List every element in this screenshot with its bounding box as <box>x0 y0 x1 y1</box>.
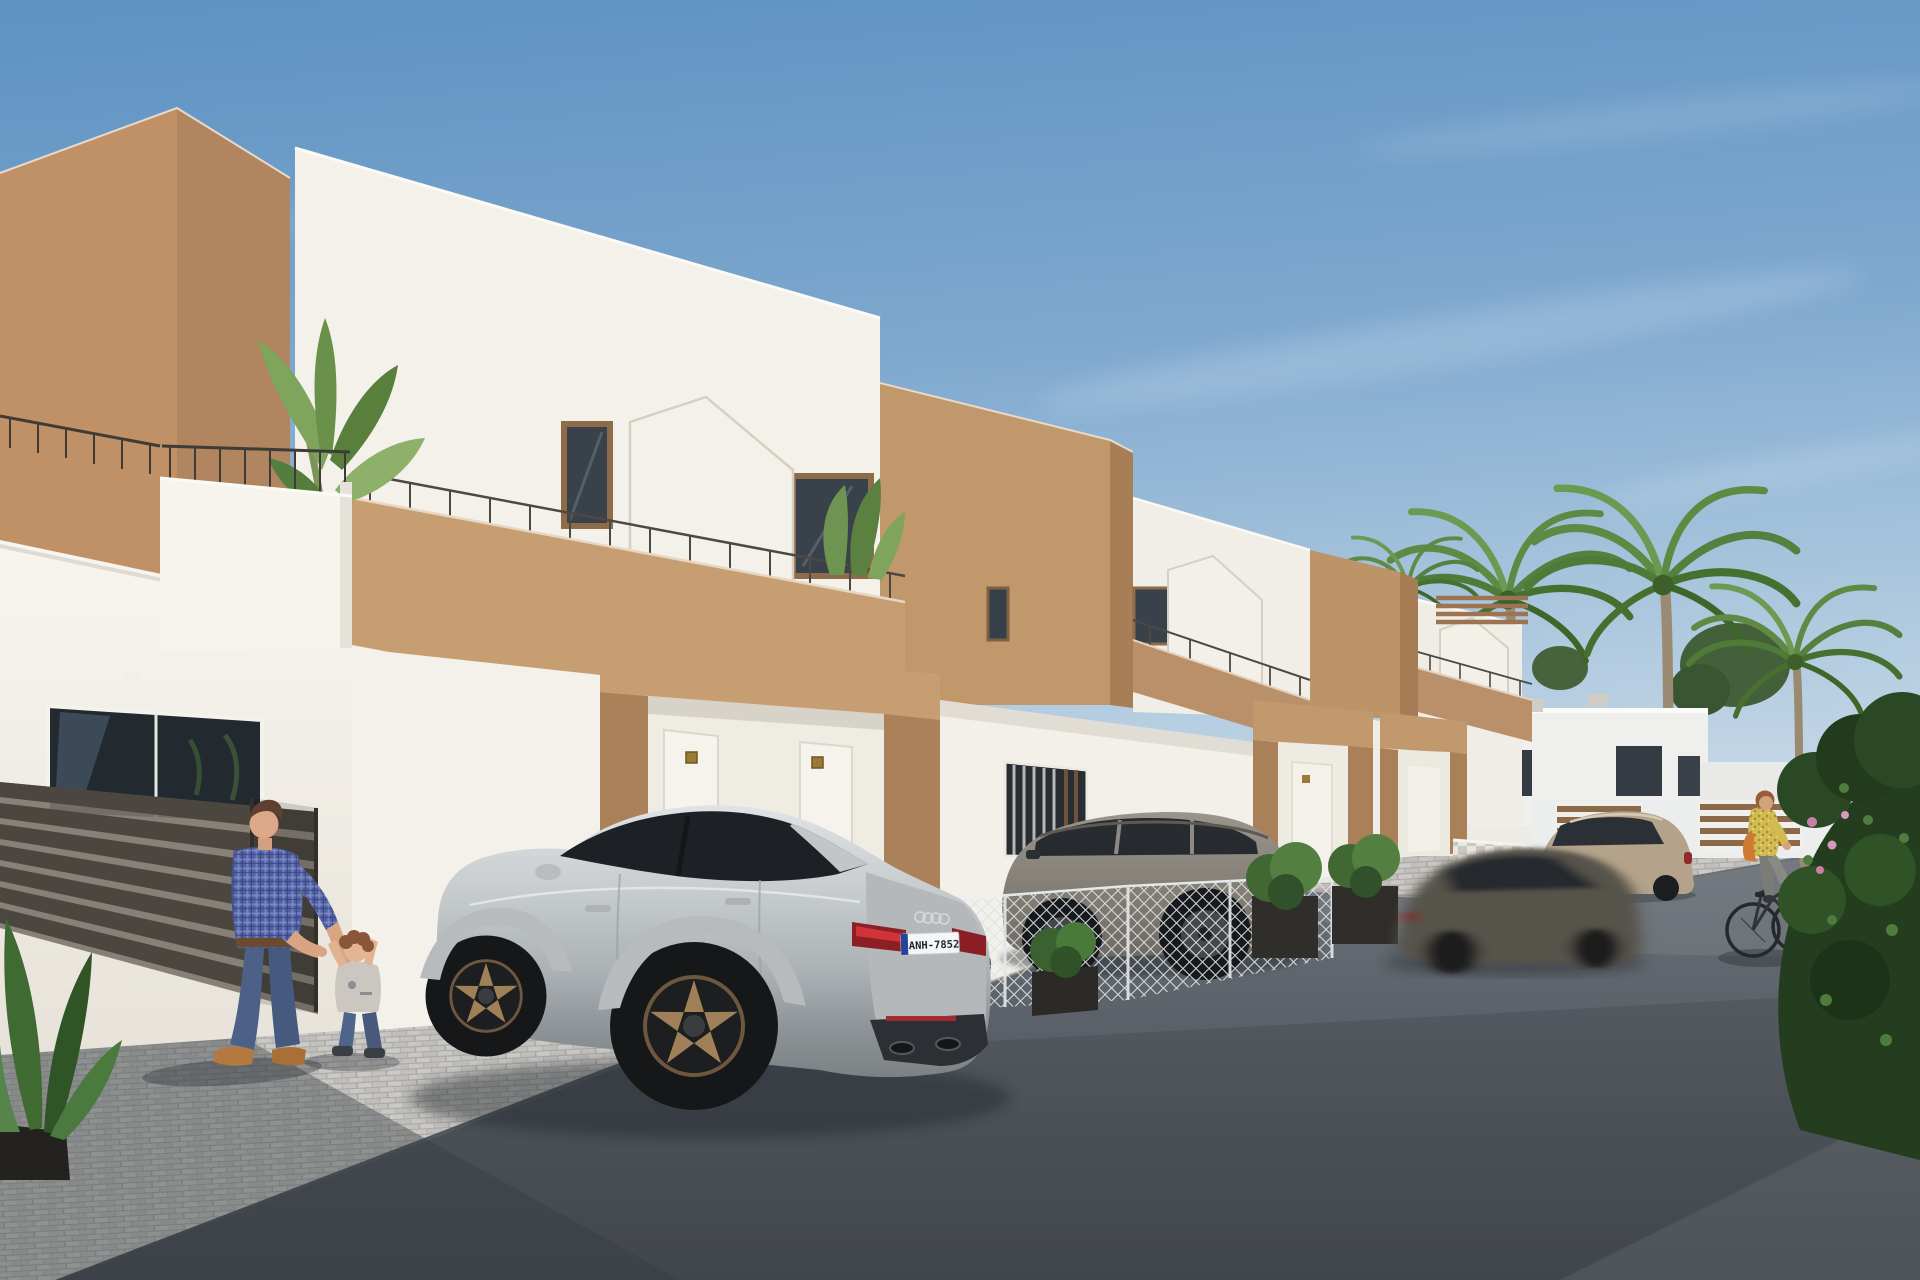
wall-lamp <box>958 738 972 745</box>
door-number-plaque <box>686 752 697 763</box>
unit4-porch <box>1380 712 1467 858</box>
audi-diffuser <box>870 1014 988 1066</box>
shoe <box>214 1046 254 1065</box>
beige-suv-taillight <box>1684 852 1692 864</box>
cyclist-head <box>1759 796 1773 810</box>
planter-shrub <box>1246 842 1322 958</box>
townhouse-3-corner <box>1310 550 1418 720</box>
scene-canvas: ANH-7852 <box>0 0 1920 1280</box>
door-number-plaque <box>1302 775 1310 783</box>
wall-lamp <box>124 672 142 680</box>
slit-window <box>988 588 1008 640</box>
large-bush-right <box>1777 692 1920 1160</box>
shoe <box>272 1047 306 1066</box>
shoe <box>332 1046 353 1056</box>
door-number-plaque <box>812 757 823 768</box>
license-plate: ANH-7852 <box>901 932 960 955</box>
front-door <box>1408 766 1440 852</box>
suv-mirror <box>1026 850 1040 859</box>
architectural-render: ANH-7852 <box>0 0 1920 1280</box>
planter-shrub <box>1328 834 1400 944</box>
license-plate-text: ANH-7852 <box>909 938 960 952</box>
shoe <box>364 1048 385 1058</box>
rooftop-unit <box>1588 694 1608 706</box>
audi-mirror <box>535 864 561 880</box>
